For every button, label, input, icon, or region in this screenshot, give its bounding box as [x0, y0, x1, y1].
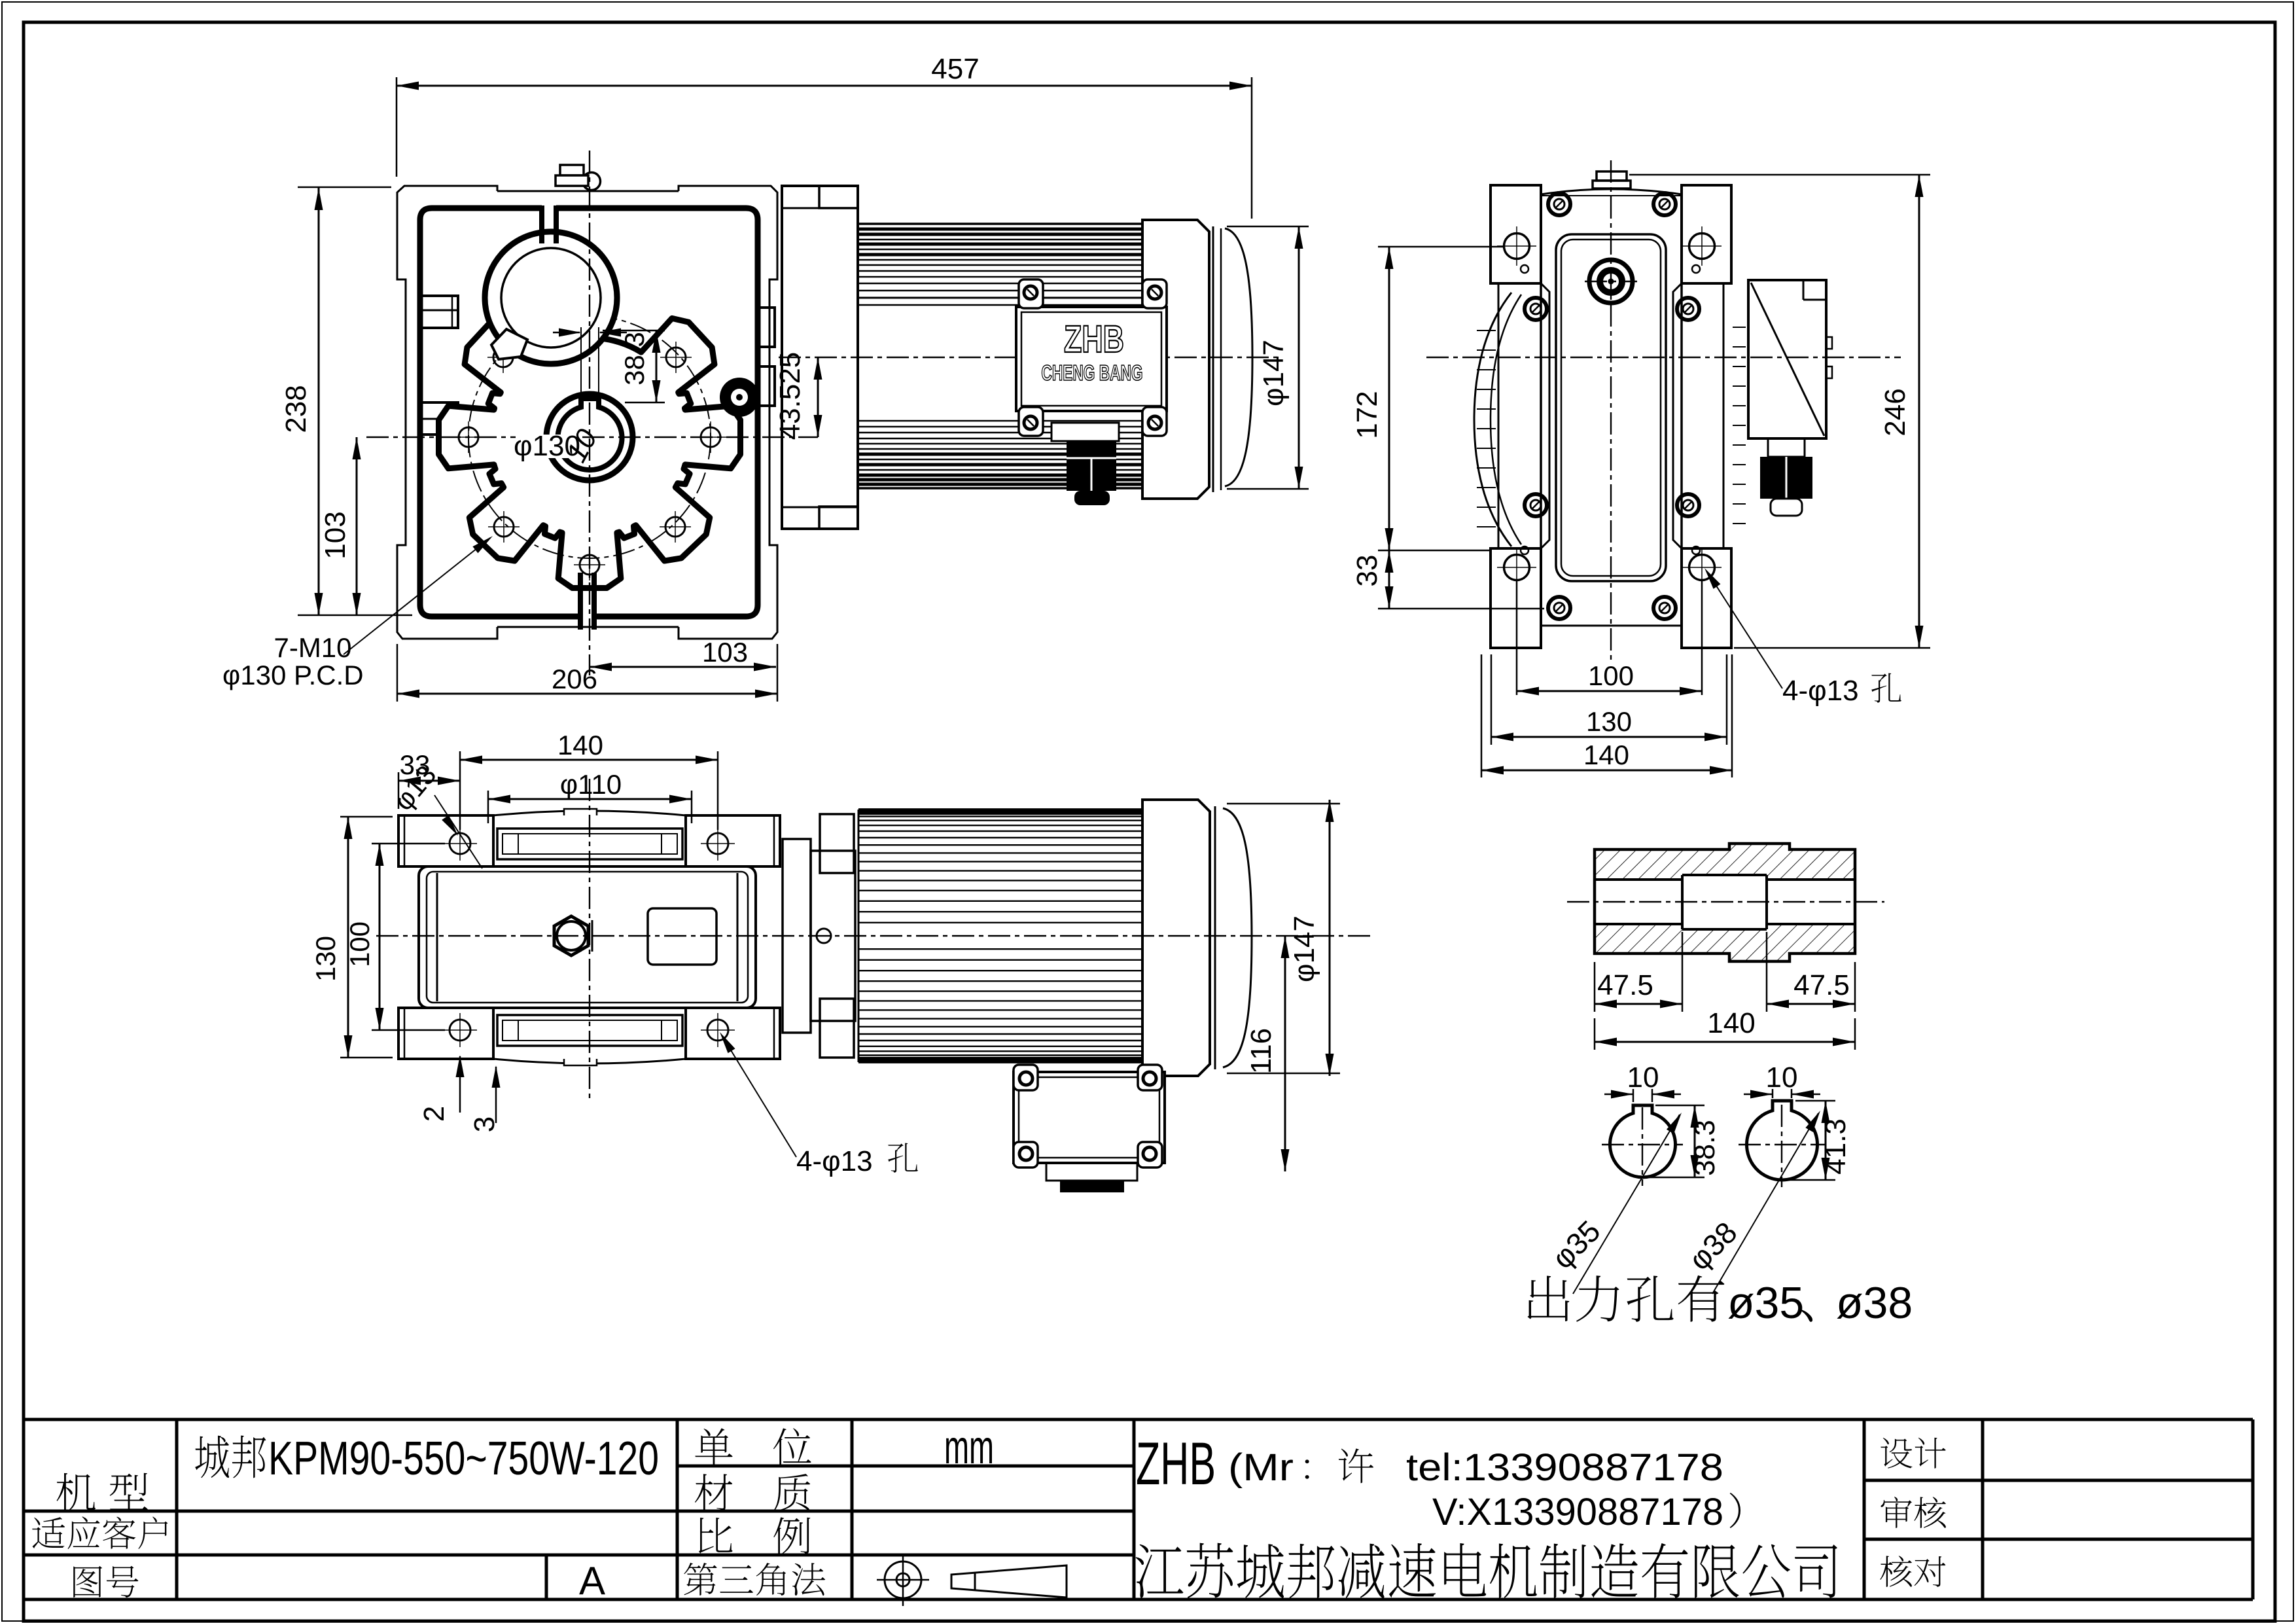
svg-text:φ147: φ147 — [1288, 916, 1320, 982]
svg-text:tel:13390887178: tel:13390887178 — [1406, 1446, 1723, 1489]
svg-text:457: 457 — [931, 53, 979, 85]
svg-text:ZHB: ZHB — [1136, 1431, 1216, 1497]
svg-text:ø35: ø35 — [1727, 1278, 1804, 1328]
svg-text:246: 246 — [1879, 388, 1911, 436]
svg-text:103: 103 — [702, 637, 748, 668]
svg-text:38.3: 38.3 — [1689, 1120, 1721, 1176]
svg-text:V:X13390887178: V:X13390887178 — [1432, 1491, 1723, 1533]
svg-text:140: 140 — [557, 730, 603, 760]
svg-text:3: 3 — [468, 1116, 501, 1132]
svg-text:47.5: 47.5 — [1793, 969, 1850, 1001]
svg-text:φ147: φ147 — [1258, 340, 1290, 406]
svg-text:47.5: 47.5 — [1597, 969, 1653, 1001]
svg-text:4-φ13: 4-φ13 — [796, 1145, 873, 1177]
svg-text:103: 103 — [319, 511, 351, 559]
svg-text:4-φ13: 4-φ13 — [1782, 675, 1859, 707]
svg-text:41.3: 41.3 — [1820, 1118, 1852, 1175]
svg-text:140: 140 — [1583, 740, 1629, 770]
svg-text:10: 10 — [1766, 1061, 1798, 1094]
svg-text:7-M10: 7-M10 — [274, 632, 351, 663]
svg-text:130: 130 — [310, 936, 341, 982]
svg-text:33: 33 — [1351, 555, 1383, 587]
svg-text:(Mr: (Mr — [1228, 1446, 1294, 1489]
svg-text:100: 100 — [1588, 660, 1634, 691]
svg-text:2: 2 — [418, 1106, 450, 1122]
svg-text:116: 116 — [1245, 1028, 1277, 1074]
svg-text:ø38: ø38 — [1836, 1278, 1913, 1328]
svg-text:ZHB: ZHB — [1064, 318, 1124, 361]
svg-text:KPM90-550~750W-120: KPM90-550~750W-120 — [268, 1433, 659, 1485]
svg-text:mm: mm — [944, 1421, 994, 1474]
svg-text:38.3: 38.3 — [619, 332, 650, 385]
svg-text:A: A — [579, 1559, 605, 1603]
svg-text:100: 100 — [344, 921, 375, 967]
svg-text:206: 206 — [552, 664, 597, 694]
svg-text:10: 10 — [1627, 1061, 1659, 1094]
svg-text:φ110: φ110 — [560, 769, 622, 800]
svg-text:238: 238 — [280, 385, 312, 433]
svg-text:CHENG BANG: CHENG BANG — [1042, 361, 1143, 385]
svg-text:140: 140 — [1707, 1007, 1755, 1039]
svg-text:φ130 P.C.D: φ130 P.C.D — [222, 660, 364, 690]
svg-text:130: 130 — [1586, 706, 1632, 737]
svg-text:43.525: 43.525 — [774, 352, 806, 440]
svg-text:172: 172 — [1351, 391, 1383, 438]
